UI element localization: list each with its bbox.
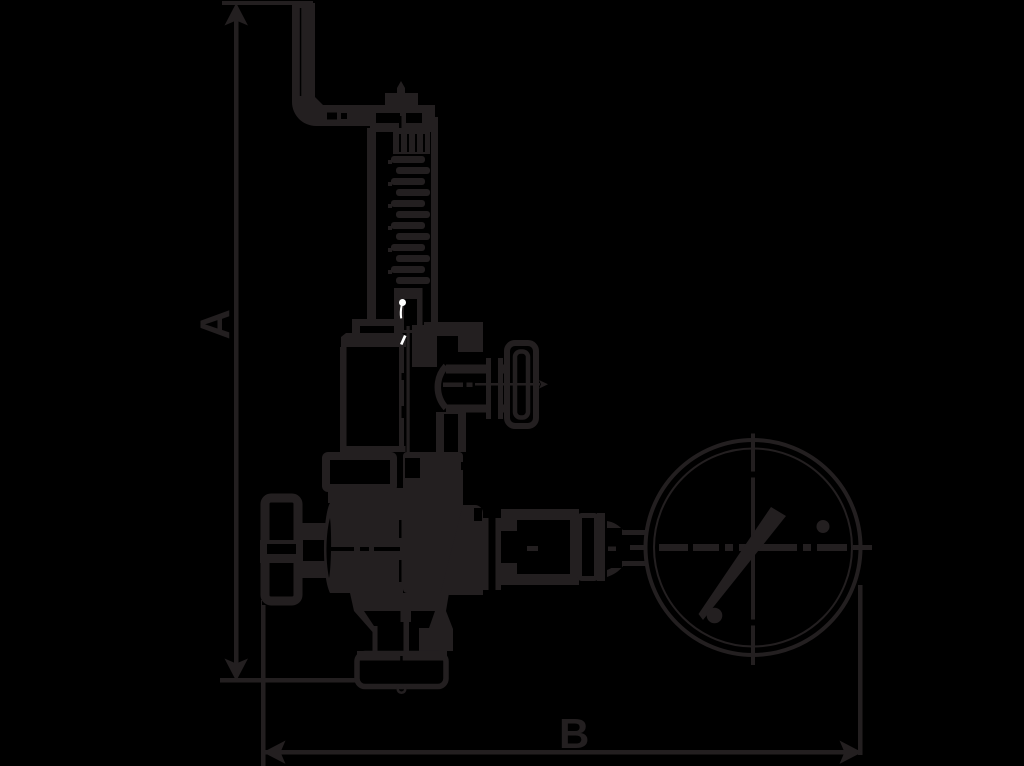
svg-text:A: A [192, 309, 239, 339]
svg-text:B: B [559, 710, 589, 757]
